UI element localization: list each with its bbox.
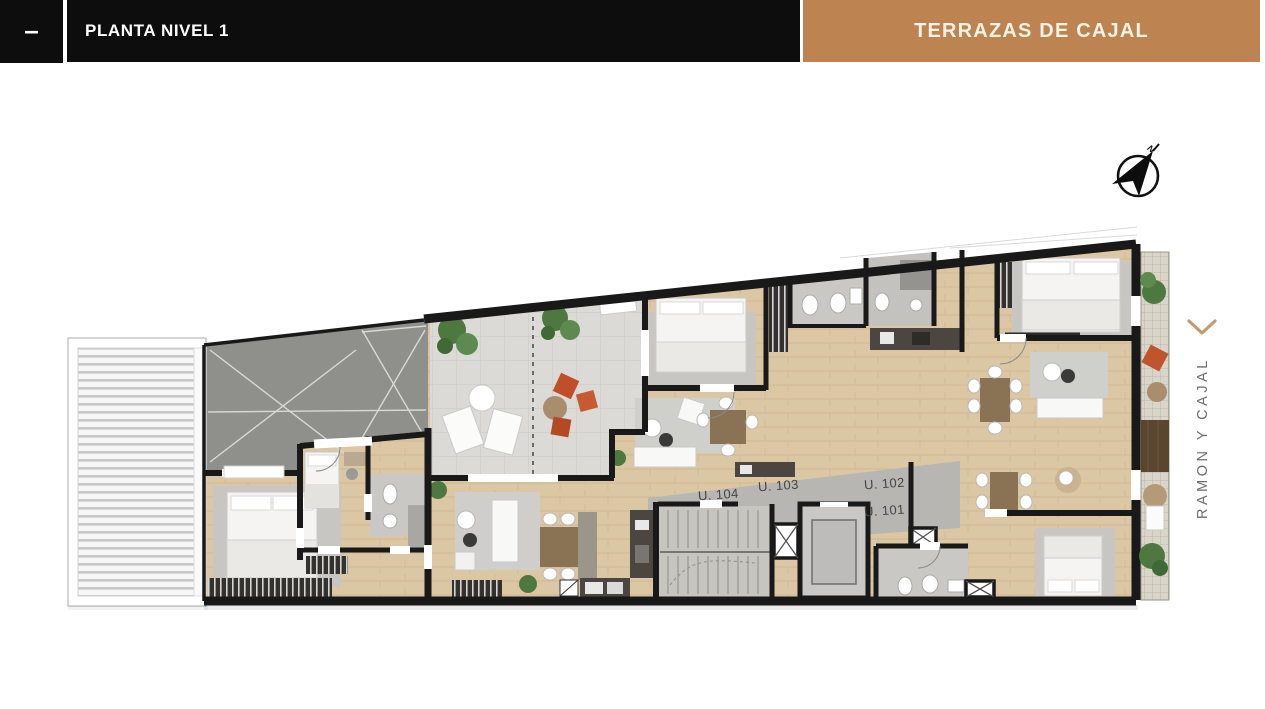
plant xyxy=(429,481,447,499)
wood-deck xyxy=(1141,420,1169,472)
bed-double xyxy=(1012,258,1134,340)
unit-label-104: U. 104 xyxy=(698,486,740,504)
building-shadow xyxy=(204,605,1138,610)
unit-label-101: U. 101 xyxy=(864,502,906,520)
window-bench xyxy=(224,466,284,478)
wardrobe xyxy=(208,578,332,598)
dining-table xyxy=(990,472,1018,514)
round-rug xyxy=(1147,382,1167,402)
round-rug xyxy=(1143,484,1167,508)
panel-shadow xyxy=(68,606,208,610)
balcony-strip xyxy=(1139,252,1169,600)
sofa xyxy=(1037,398,1103,418)
closet xyxy=(769,280,788,352)
louver-roof xyxy=(68,338,206,606)
chevron-down-icon xyxy=(1186,318,1218,338)
street-label: RAMON Y CAJAL xyxy=(1191,356,1215,520)
bed-double xyxy=(648,298,756,386)
dining-table xyxy=(980,378,1010,422)
wardrobe xyxy=(306,556,348,574)
round-rug xyxy=(543,396,567,420)
bed-double xyxy=(1035,528,1115,598)
lounge-chair xyxy=(1146,506,1164,530)
kitchen-102 xyxy=(870,328,962,350)
dining-table xyxy=(540,527,580,567)
floor-plan: N xyxy=(0,0,1265,709)
sofa xyxy=(634,447,696,467)
elevator xyxy=(800,502,868,598)
unit-label-103: U. 103 xyxy=(758,477,800,495)
plant xyxy=(519,575,537,593)
dining-table xyxy=(710,410,746,444)
compass-icon: N xyxy=(1112,143,1159,196)
floor-plan-page: – PLANTA NIVEL 1 TERRAZAS DE CAJAL xyxy=(0,0,1265,709)
unit-label-102: U. 102 xyxy=(864,475,906,493)
